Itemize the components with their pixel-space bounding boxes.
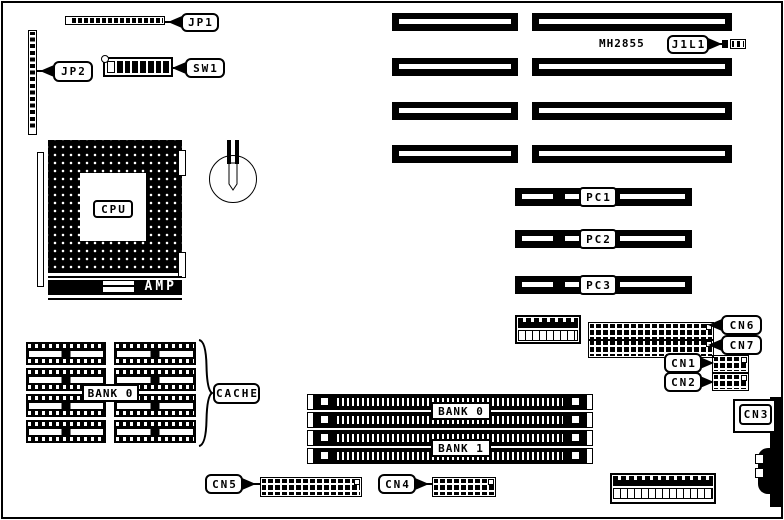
slot-segment (620, 282, 685, 287)
callout-cn1: CN1 (664, 353, 702, 373)
socket-tab (178, 150, 186, 176)
power-cells (518, 330, 578, 341)
memory-bank0-label-box: BANK 0 (431, 402, 491, 420)
isa-slot (392, 145, 518, 163)
callout-cache: CACHE (213, 383, 260, 404)
chip-body (117, 351, 193, 357)
callout-jp1: JP1 (181, 13, 219, 32)
chip-body (117, 429, 193, 435)
din-notch (755, 454, 764, 464)
chip-body (117, 403, 193, 409)
power-band (613, 480, 713, 486)
cn2-label: CN2 (671, 376, 697, 389)
callout-cn5: CN5 (205, 474, 243, 494)
pci-slot-pc2: PC2 (515, 230, 692, 248)
simm-end (586, 430, 593, 446)
cache-chip (114, 342, 196, 365)
isa-slot (532, 102, 732, 120)
jumper-strip-jp1 (65, 16, 165, 25)
cn1-header (712, 355, 749, 373)
dip-switch-position (148, 61, 154, 73)
cache-bank-label-box: BANK 0 (82, 384, 139, 402)
socket-tab (178, 252, 186, 278)
cache-chip (26, 342, 106, 365)
dip-switch-position (140, 61, 146, 73)
callout-pc1: PC1 (579, 187, 617, 207)
cn3-label: CN3 (744, 408, 770, 421)
isa-slot (532, 58, 732, 76)
chip-body (29, 403, 103, 409)
callout-sw1: SW1 (185, 58, 225, 78)
simm-end (307, 448, 314, 464)
slot-segment (620, 194, 685, 199)
callout-cn4: CN4 (378, 474, 416, 494)
amp-socket-notch (103, 281, 134, 292)
simm-end (586, 412, 593, 428)
simm-end (307, 430, 314, 446)
simm-clip (320, 415, 329, 424)
amp-brand-text: AMP (145, 279, 177, 294)
cn7-label: CN7 (730, 339, 756, 352)
slot-segment (522, 282, 553, 287)
dip-switch-position (125, 61, 131, 73)
slot-segment (522, 194, 553, 199)
simm-end (586, 448, 593, 464)
cpu-side-connector (37, 152, 44, 287)
cn6-label: CN6 (730, 319, 756, 332)
amp-socket-bar: AMP (48, 276, 182, 295)
simm-clip (320, 451, 329, 460)
isa-slot (392, 102, 518, 120)
pc1-label: PC1 (586, 191, 612, 204)
simm-clip (320, 433, 329, 442)
dip-switch-position (163, 61, 169, 73)
chip-body (29, 429, 103, 435)
cn5-label: CN5 (212, 478, 238, 491)
cn1-label: CN1 (671, 357, 697, 370)
motherboard-diagram: JP1 JP2 SW1 MH2855 J1L1 CPU AMP PC (0, 0, 784, 520)
chip-marking-text: MH2855 (599, 37, 645, 50)
amp-bar-underline (48, 298, 182, 300)
pci-slot-pc1: PC1 (515, 188, 692, 206)
memory-bank0-label: BANK 0 (438, 405, 484, 418)
cn5-header (260, 477, 362, 497)
dip-switch-position-off (107, 61, 115, 73)
jp2-label: JP2 (61, 65, 87, 78)
pci-slot-pc3: PC3 (515, 276, 692, 294)
slot-segment (522, 236, 553, 241)
callout-cpu: CPU (93, 200, 133, 218)
simm-clip (571, 433, 580, 442)
chip-body (29, 377, 103, 383)
simm-clip (571, 451, 580, 460)
cpu-label: CPU (101, 203, 127, 216)
power-band (518, 322, 578, 328)
cache-bank-label: BANK 0 (88, 387, 134, 400)
cn2-header (712, 373, 749, 391)
power-cells (613, 488, 713, 499)
cn4-header (432, 477, 496, 497)
power-connector-main (610, 473, 716, 504)
simm-end (307, 412, 314, 428)
cache-chip (114, 420, 196, 443)
dip-switch-position (132, 61, 138, 73)
power-connector-small (515, 315, 581, 344)
battery-holder (209, 155, 257, 203)
callout-cn7: CN7 (721, 335, 762, 355)
simm-clip (571, 415, 580, 424)
pc3-label: PC3 (586, 279, 612, 292)
din-notch (755, 468, 764, 478)
jumper-strip-jp2 (28, 30, 37, 135)
j1l1-jumper-block (722, 40, 728, 48)
simm-clip (320, 397, 329, 406)
callout-j1l1: J1L1 (667, 35, 709, 54)
memory-bank1-label-box: BANK 1 (431, 439, 491, 457)
cn4-label: CN4 (385, 478, 411, 491)
isa-slot (392, 58, 518, 76)
callout-pc2: PC2 (579, 229, 617, 249)
sw1-label: SW1 (193, 62, 219, 75)
chip-body (117, 377, 193, 383)
j1l1-label: J1L1 (672, 38, 707, 51)
callout-cn2: CN2 (664, 372, 702, 392)
pc2-label: PC2 (586, 233, 612, 246)
cache-label: CACHE (216, 387, 259, 400)
dip-switch-position (117, 61, 123, 73)
callout-cn3: CN3 (739, 404, 772, 425)
dip-switch-position (156, 61, 162, 73)
isa-slot (392, 13, 518, 31)
j1l1-jumper-header (730, 39, 746, 49)
cache-chip (26, 420, 106, 443)
simm-end (307, 394, 314, 410)
isa-slot (532, 145, 732, 163)
callout-pc3: PC3 (579, 275, 617, 295)
simm-clip (571, 397, 580, 406)
memory-bank1-label: BANK 1 (438, 442, 484, 455)
chip-body (29, 351, 103, 357)
simm-end (586, 394, 593, 410)
dip-switch-sw1 (103, 57, 173, 77)
isa-slot (532, 13, 732, 31)
jp1-label: JP1 (188, 16, 214, 29)
callout-cn6: CN6 (721, 315, 762, 335)
slot-segment (620, 236, 685, 241)
callout-jp2: JP2 (53, 61, 93, 82)
